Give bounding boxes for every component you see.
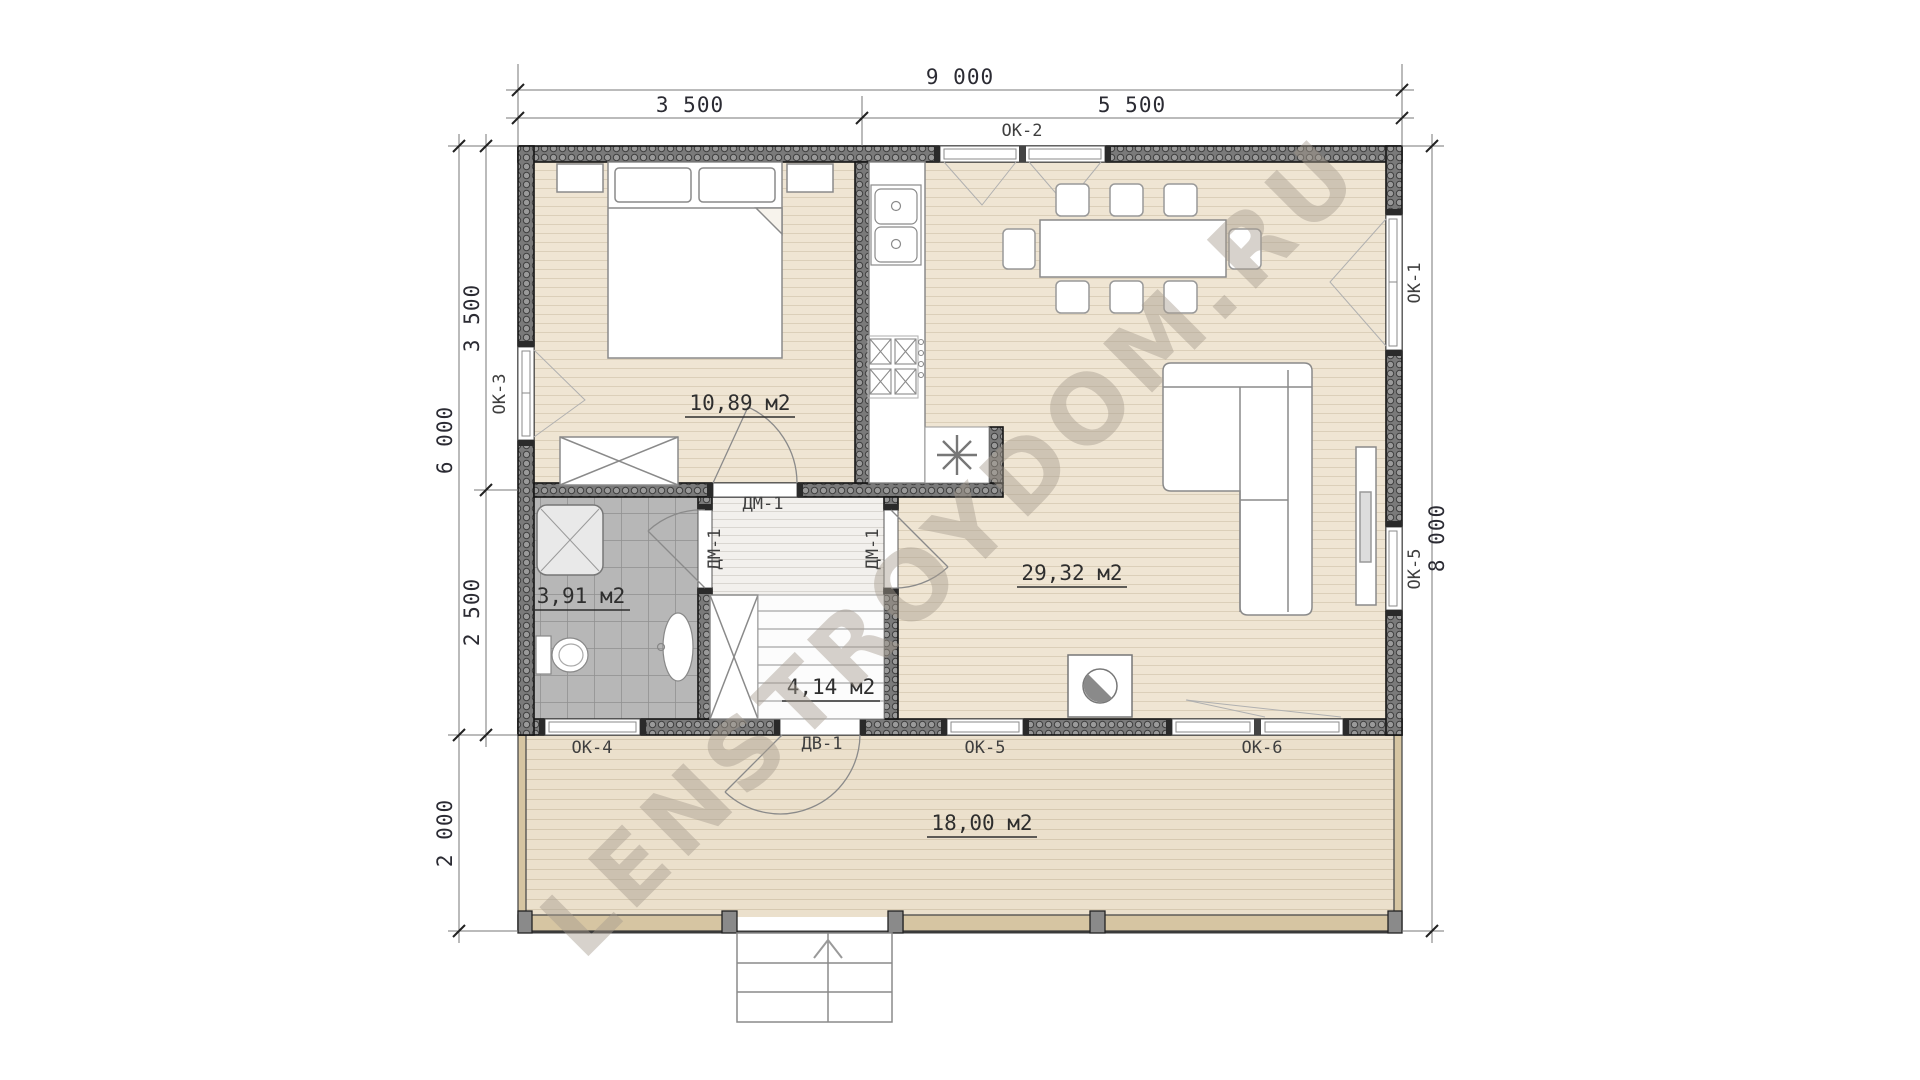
- room-label-living: 29,32 м2: [1021, 561, 1122, 585]
- room-label-bathroom: 3,91 м2: [537, 584, 626, 608]
- window-label-ok5-right: ОК-5: [1405, 549, 1425, 590]
- door-label-bathroom: ДМ-1: [705, 529, 725, 570]
- kitchen-sink: [871, 185, 921, 265]
- dim-top-left: 3 500: [656, 93, 724, 117]
- wood-stove: [1068, 655, 1132, 717]
- window-ok5-right: [1386, 521, 1402, 616]
- dim-left-terrace: 2 000: [433, 799, 457, 867]
- window-ok4: [539, 719, 646, 735]
- toilet: [536, 636, 588, 674]
- dining-chair: [1110, 184, 1143, 216]
- dim-left-house: 6 000: [433, 406, 457, 474]
- pillow: [615, 168, 691, 202]
- dim-left-bedroom: 3 500: [460, 284, 484, 352]
- terrace-post: [722, 911, 737, 933]
- window-label-ok3: ОК-3: [490, 374, 510, 415]
- room-label-terrace: 18,00 м2: [931, 811, 1032, 835]
- dining-chair: [1056, 184, 1089, 216]
- terrace-post: [518, 911, 532, 933]
- wardrobe: [560, 437, 678, 485]
- dim-right-total: 8 000: [1425, 504, 1449, 572]
- steps-outline: [737, 933, 892, 1022]
- dim-top-total: 9 000: [926, 65, 994, 89]
- terrace-post: [1090, 911, 1105, 933]
- nightstand-right: [787, 164, 833, 192]
- shower: [537, 505, 603, 575]
- tv-stand: [1356, 447, 1376, 605]
- floor-plan-drawing: 9 000 3 500 5 500 6 000 2 000 3 500 2 50…: [0, 0, 1920, 1080]
- terrace-rail-right: [1394, 735, 1402, 931]
- terrace-post: [888, 911, 903, 933]
- dining-chair: [1003, 229, 1035, 269]
- window-label-ok1: ОК-1: [1405, 263, 1425, 304]
- terrace-post: [1388, 911, 1402, 933]
- window-label-ok4: ОК-4: [572, 738, 613, 758]
- window-ok5-bottom: [941, 719, 1029, 735]
- wall-bedroom-kitchen: [855, 162, 869, 483]
- dining-chair: [1164, 184, 1197, 216]
- window-label-ok6: ОК-6: [1242, 738, 1283, 758]
- window-label-ok2: ОК-2: [1002, 121, 1043, 141]
- nightstand-left: [557, 164, 603, 192]
- dim-top-right: 5 500: [1098, 93, 1166, 117]
- terrace-rail-bottom-right: [903, 915, 1394, 931]
- entrance-steps: [737, 933, 892, 1022]
- floor-plan-canvas: 9 000 3 500 5 500 6 000 2 000 3 500 2 50…: [0, 0, 1920, 1080]
- pillow: [699, 168, 775, 202]
- door-label-bedroom: ДМ-1: [743, 494, 784, 514]
- dim-left-bathroom: 2 500: [460, 578, 484, 646]
- dining-chair: [1056, 281, 1089, 313]
- room-label-bedroom: 10,89 м2: [689, 391, 790, 415]
- window-label-ok5-bottom: ОК-5: [965, 738, 1006, 758]
